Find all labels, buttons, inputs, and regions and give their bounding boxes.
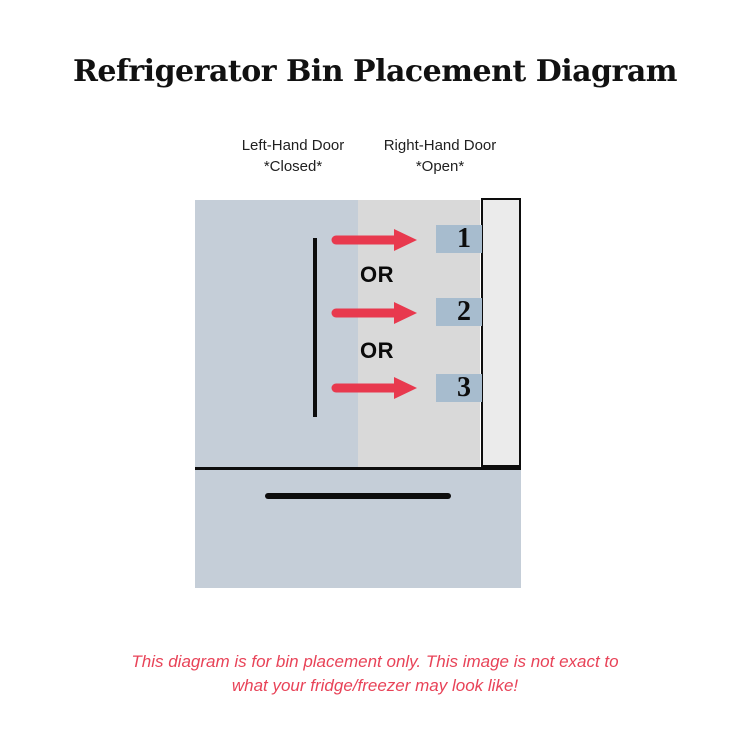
left-door-label-line2: *Closed* [242,156,345,177]
arrow-right-icon [330,375,418,401]
disclaimer-line1: This diagram is for bin placement only. … [0,650,750,674]
diagram-canvas: Refrigerator Bin Placement Diagram Left-… [0,0,750,750]
left-door-label-line1: Left-Hand Door [242,135,345,156]
freezer-handle-line [265,493,451,499]
door-handle-line [313,238,317,417]
page-title: Refrigerator Bin Placement Diagram [0,54,750,89]
right-door-label-line1: Right-Hand Door [384,135,497,156]
disclaimer-text: This diagram is for bin placement only. … [0,650,750,698]
or-label-2: OR [360,338,394,364]
arrow-right-icon [330,227,418,253]
arrow-right-icon [330,300,418,326]
right-door-open-panel [481,198,521,467]
or-label-1: OR [360,262,394,288]
right-door-label-line2: *Open* [384,156,497,177]
right-door-label: Right-Hand Door *Open* [384,135,497,177]
fridge-diagram: OR OR 1 2 3 [195,198,522,590]
bin-slot-3: 3 [436,374,482,402]
disclaimer-line2: what your fridge/freezer may look like! [0,674,750,698]
left-door-label: Left-Hand Door *Closed* [242,135,345,177]
bin-slot-1: 1 [436,225,482,253]
freezer-section [195,470,521,588]
bin-slot-2: 2 [436,298,482,326]
